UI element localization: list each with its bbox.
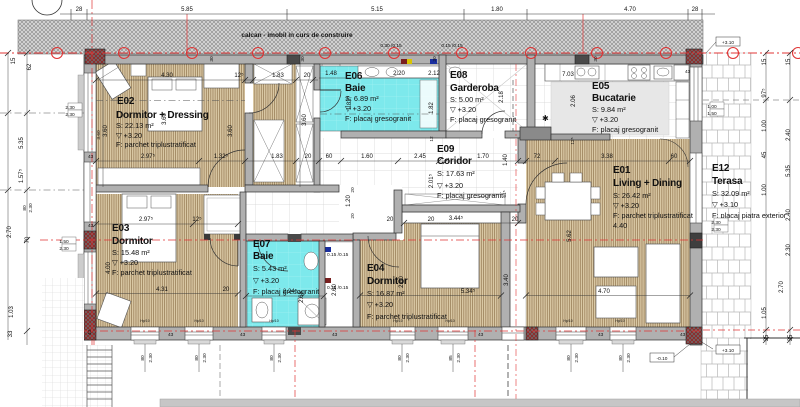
svg-text:80: 80 [397,355,403,361]
svg-text:F: placaj gresogranit: F: placaj gresogranit [450,115,516,124]
svg-text:F: placaj gresogranit: F: placaj gresogranit [345,114,411,123]
svg-text:1.50: 1.50 [707,111,717,117]
svg-text:2.30: 2.30 [65,112,75,118]
svg-text:F: parchet triplustratificat: F: parchet triplustratificat [613,211,693,220]
svg-text:S: 9.84 m²: S: 9.84 m² [592,105,626,114]
svg-text:Coridor: Coridor [437,156,472,167]
svg-text:1.82⁵: 1.82⁵ [346,95,353,110]
svg-text:F: parchet triplustratificat: F: parchet triplustratificat [367,312,447,321]
svg-text:Hp/10: Hp/10 [563,319,572,323]
svg-text:33: 33 [8,330,14,337]
svg-text:2.70: 2.70 [779,281,785,293]
svg-text:E08: E08 [450,70,468,81]
svg-text:80: 80 [194,355,200,361]
svg-text:20: 20 [350,187,356,193]
svg-text:1.00: 1.00 [762,120,768,132]
svg-text:43: 43 [680,332,686,338]
svg-text:Living + Dining: Living + Dining [613,178,682,189]
svg-text:1.82: 1.82 [429,102,435,114]
svg-text:2.30: 2.30 [405,353,411,363]
svg-text:28: 28 [692,7,699,13]
svg-text:1.00: 1.00 [707,104,717,110]
svg-text:30: 30 [593,56,599,62]
svg-text:F: parchet triplustratificat: F: parchet triplustratificat [116,140,196,149]
svg-text:Hp/10: Hp/10 [445,319,454,323]
svg-text:97⁵: 97⁵ [761,88,768,98]
svg-text:F: parchet triplustratificat: F: parchet triplustratificat [112,268,192,277]
svg-text:S: 26.42 m²: S: 26.42 m² [613,191,651,200]
svg-text:-0.10: -0.10 [657,356,668,362]
svg-text:2.97⁵: 2.97⁵ [141,153,156,160]
svg-text:43: 43 [87,329,93,335]
svg-text:1.40: 1.40 [503,154,509,166]
svg-text:5.35: 5.35 [19,137,25,149]
svg-text:2.30: 2.30 [65,105,75,111]
svg-text:85: 85 [448,355,454,361]
svg-text:4.31: 4.31 [156,287,168,293]
svg-text:2.30: 2.30 [202,353,208,363]
svg-text:2.30: 2.30 [574,353,580,363]
svg-text:80: 80 [140,355,146,361]
svg-text:30: 30 [432,56,438,62]
svg-text:80: 80 [566,355,572,361]
svg-text:E09: E09 [437,144,455,155]
svg-text:▽ +3.20: ▽ +3.20 [116,131,142,140]
svg-text:5.15: 5.15 [371,7,383,13]
svg-text:60: 60 [671,154,678,160]
svg-text:Terasa: Terasa [712,176,743,187]
svg-text:1.05: 1.05 [762,307,768,319]
svg-text:0.15 /0.15: 0.15 /0.15 [441,43,463,49]
svg-text:80: 80 [269,355,275,361]
svg-text:2.30: 2.30 [59,246,69,252]
svg-text:✱: ✱ [542,114,549,123]
svg-text:3.38: 3.38 [601,154,613,160]
svg-text:2.24⁵: 2.24⁵ [283,288,298,295]
svg-text:1.48: 1.48 [325,71,337,77]
svg-text:E01: E01 [613,165,631,176]
svg-text:35: 35 [764,334,770,341]
svg-text:4.70: 4.70 [598,289,610,295]
svg-text:0.15 /0.15: 0.15 /0.15 [327,252,349,258]
svg-text:S: 22.13 m²: S: 22.13 m² [116,121,154,130]
svg-text:▽ +3.20: ▽ +3.20 [367,300,393,309]
svg-text:43: 43 [88,154,94,160]
svg-text:30: 30 [300,56,306,62]
svg-text:3.44⁵: 3.44⁵ [449,215,464,222]
svg-text:3.60: 3.60 [228,125,234,137]
svg-text:12: 12 [429,136,435,142]
svg-text:▽ +3.20: ▽ +3.20 [437,181,463,190]
svg-text:▽ +3.10: ▽ +3.10 [712,200,738,209]
svg-text:43: 43 [685,69,691,75]
svg-text:1.32⁵: 1.32⁵ [214,153,229,160]
svg-text:4.00: 4.00 [106,262,112,274]
svg-text:2.18: 2.18 [499,91,505,103]
svg-text:S: 15.48 m²: S: 15.48 m² [112,248,150,257]
svg-text:▽ +3.20: ▽ +3.20 [112,258,138,267]
svg-text:20: 20 [304,73,311,79]
svg-text:3.60: 3.60 [103,125,109,137]
svg-text:E07: E07 [253,239,271,250]
svg-text:30: 30 [209,56,215,62]
svg-text:2.40: 2.40 [786,129,792,141]
svg-text:E02: E02 [117,96,135,107]
svg-text:12⁵: 12⁵ [234,72,244,79]
svg-text:1.60: 1.60 [361,154,373,160]
svg-text:28: 28 [76,7,83,13]
svg-text:Baie: Baie [253,251,274,262]
svg-text:20: 20 [428,217,435,223]
svg-text:+3.10: +3.10 [722,348,734,354]
svg-text:calcan - imobil in curs de con: calcan - imobil in curs de construire [241,32,353,39]
svg-text:Dormitor: Dormitor [112,236,153,247]
svg-text:20: 20 [512,217,519,223]
svg-text:2.30: 2.30 [626,353,632,363]
svg-text:2.20: 2.20 [393,71,405,77]
svg-text:5.62: 5.62 [567,230,573,242]
svg-text:1.20: 1.20 [346,195,352,207]
svg-text:61⁵: 61⁵ [502,190,508,197]
svg-text:43: 43 [332,332,338,338]
svg-text:15: 15 [11,57,17,64]
svg-text:3.60: 3.60 [302,114,308,126]
svg-text:62: 62 [27,63,33,70]
svg-text:Hp/10: Hp/10 [140,319,149,323]
svg-text:Hp/10: Hp/10 [393,319,402,323]
svg-text:5.34⁵: 5.34⁵ [461,288,476,295]
svg-text:Hp/10: Hp/10 [194,319,203,323]
svg-text:2.30: 2.30 [28,203,34,213]
svg-text:▽ +3.20: ▽ +3.20 [613,201,639,210]
svg-text:E04: E04 [367,263,385,274]
svg-text:3.60: 3.60 [162,113,168,125]
svg-text:2.45: 2.45 [414,154,426,160]
svg-text:0.15 /0.15: 0.15 /0.15 [327,285,349,291]
svg-text:Bucatarie: Bucatarie [592,93,636,104]
svg-text:20: 20 [223,287,230,293]
svg-text:2.30: 2.30 [148,353,154,363]
svg-text:15: 15 [786,58,792,65]
svg-text:2.60: 2.60 [399,276,405,288]
svg-text:2.40: 2.40 [786,209,792,221]
svg-text:+3.10: +3.10 [722,40,734,46]
svg-text:43: 43 [88,223,94,229]
svg-text:Baie: Baie [345,83,366,94]
svg-text:60: 60 [326,154,333,160]
svg-text:20: 20 [305,154,312,160]
svg-text:E03: E03 [112,223,130,234]
svg-text:S: 5.00 m²: S: 5.00 m² [450,95,484,104]
svg-text:2.68: 2.68 [299,291,305,303]
svg-text:2.30: 2.30 [277,353,283,363]
svg-text:1.83: 1.83 [272,73,284,79]
svg-text:1.70: 1.70 [477,154,489,160]
svg-text:3.40: 3.40 [504,274,510,286]
svg-text:E06: E06 [345,71,363,82]
svg-text:5.35: 5.35 [786,165,792,177]
svg-text:S: 5.43 m²: S: 5.43 m² [253,264,287,273]
svg-text:20: 20 [350,213,356,219]
svg-text:2.30: 2.30 [711,220,721,226]
svg-text:F: placaj gresogranit: F: placaj gresogranit [437,191,503,200]
svg-text:12⁵: 12⁵ [570,137,576,144]
svg-text:12⁵: 12⁵ [192,216,202,223]
svg-text:80: 80 [618,355,624,361]
svg-text:43: 43 [598,332,604,338]
svg-text:1.57⁵: 1.57⁵ [18,168,25,183]
svg-text:▽ +3.20: ▽ +3.20 [450,105,476,114]
svg-text:▽ +3.20: ▽ +3.20 [592,115,618,124]
svg-text:43: 43 [478,332,484,338]
svg-text:0.30 /0.15: 0.30 /0.15 [380,43,402,49]
svg-text:2.30: 2.30 [786,244,792,256]
svg-text:4.40: 4.40 [613,221,627,230]
svg-text:72: 72 [534,154,541,160]
svg-text:4.30: 4.30 [161,73,173,79]
svg-text:2.70: 2.70 [7,226,13,238]
svg-text:2.12: 2.12 [428,71,440,77]
svg-text:2.97⁵: 2.97⁵ [139,216,154,223]
svg-text:2.30: 2.30 [456,353,462,363]
svg-text:43: 43 [168,332,174,338]
svg-text:2.30: 2.30 [711,227,721,233]
svg-text:1.80: 1.80 [491,7,503,13]
svg-text:4.70: 4.70 [624,7,636,13]
svg-text:80: 80 [22,205,28,211]
svg-text:F: placaj gresogranit: F: placaj gresogranit [592,125,658,134]
svg-text:Garderoba: Garderoba [450,83,499,94]
svg-text:45: 45 [762,151,768,158]
svg-text:E05: E05 [592,81,610,92]
svg-text:E12: E12 [712,163,730,174]
svg-text:▽ +3.20: ▽ +3.20 [253,276,279,285]
svg-text:15: 15 [762,58,768,65]
svg-text:2.06: 2.06 [571,95,577,107]
svg-text:5.85: 5.85 [181,7,193,13]
svg-text:35: 35 [788,334,794,341]
svg-text:S: 32.09 m²: S: 32.09 m² [712,189,750,198]
svg-text:1.83: 1.83 [271,154,283,160]
svg-text:70: 70 [25,236,31,243]
svg-text:1.50: 1.50 [59,239,69,245]
svg-text:S: 16.87 m²: S: 16.87 m² [367,289,405,298]
svg-text:3.60: 3.60 [96,130,102,140]
svg-text:Hp/10: Hp/10 [269,319,278,323]
svg-text:2.01⁵: 2.01⁵ [428,173,435,188]
svg-text:S: 17.63 m²: S: 17.63 m² [437,169,475,178]
svg-text:43: 43 [240,332,246,338]
svg-text:7.03: 7.03 [562,72,574,78]
svg-text:20: 20 [387,217,394,223]
svg-text:1.03: 1.03 [9,306,15,318]
svg-text:Hp/10: Hp/10 [615,319,624,323]
svg-text:1.00: 1.00 [762,184,768,196]
